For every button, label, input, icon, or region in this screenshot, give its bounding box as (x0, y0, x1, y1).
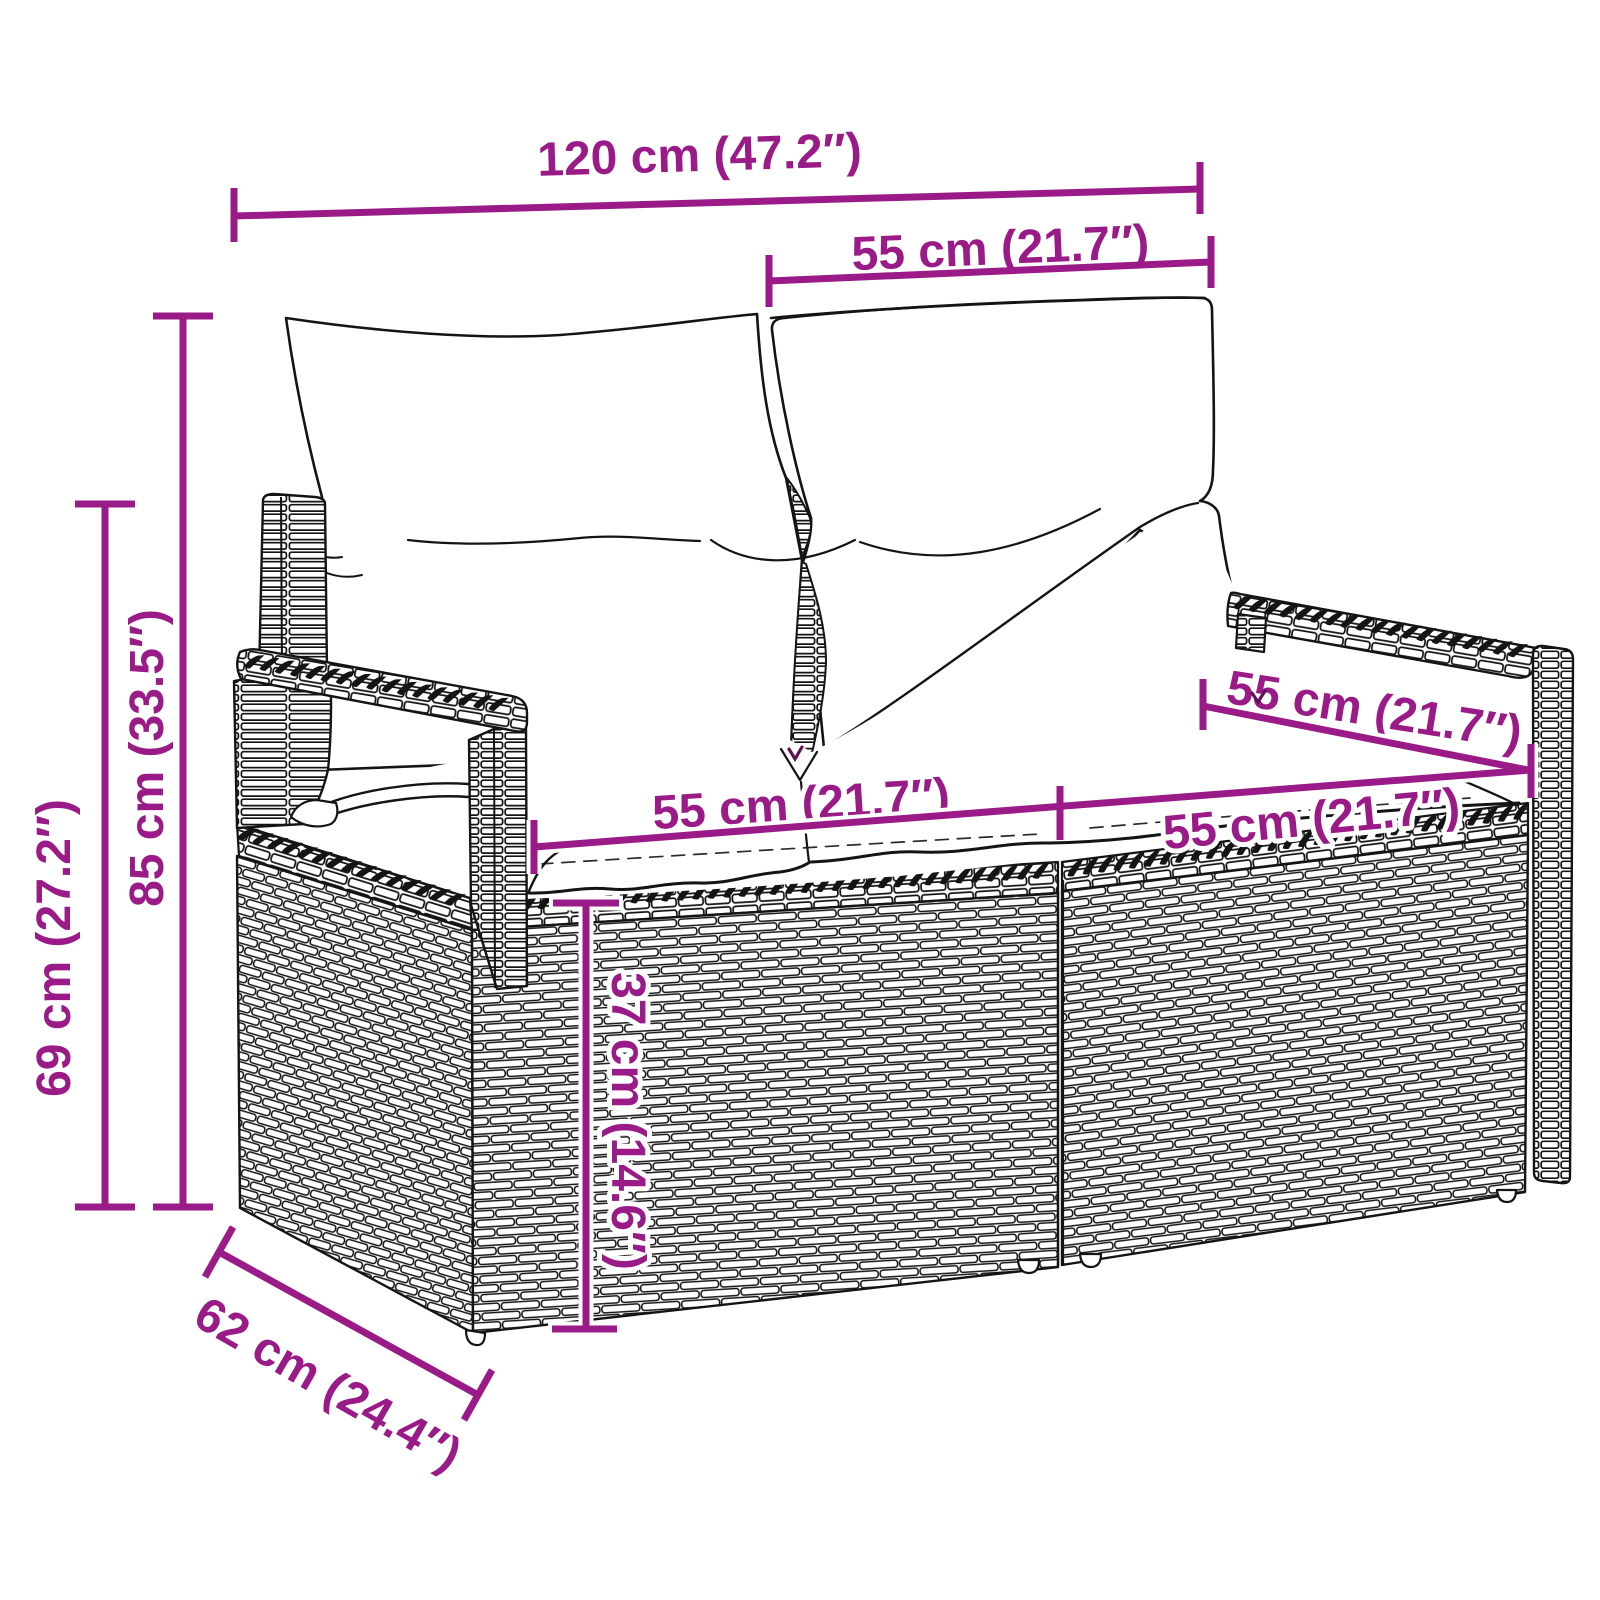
svg-text:85 cm (33.5″): 85 cm (33.5″) (121, 609, 174, 907)
svg-text:37 cm (14.6″): 37 cm (14.6″) (601, 972, 654, 1270)
svg-text:69 cm (27.2″): 69 cm (27.2″) (28, 799, 81, 1097)
svg-text:120 cm (47.2″): 120 cm (47.2″) (537, 124, 863, 187)
